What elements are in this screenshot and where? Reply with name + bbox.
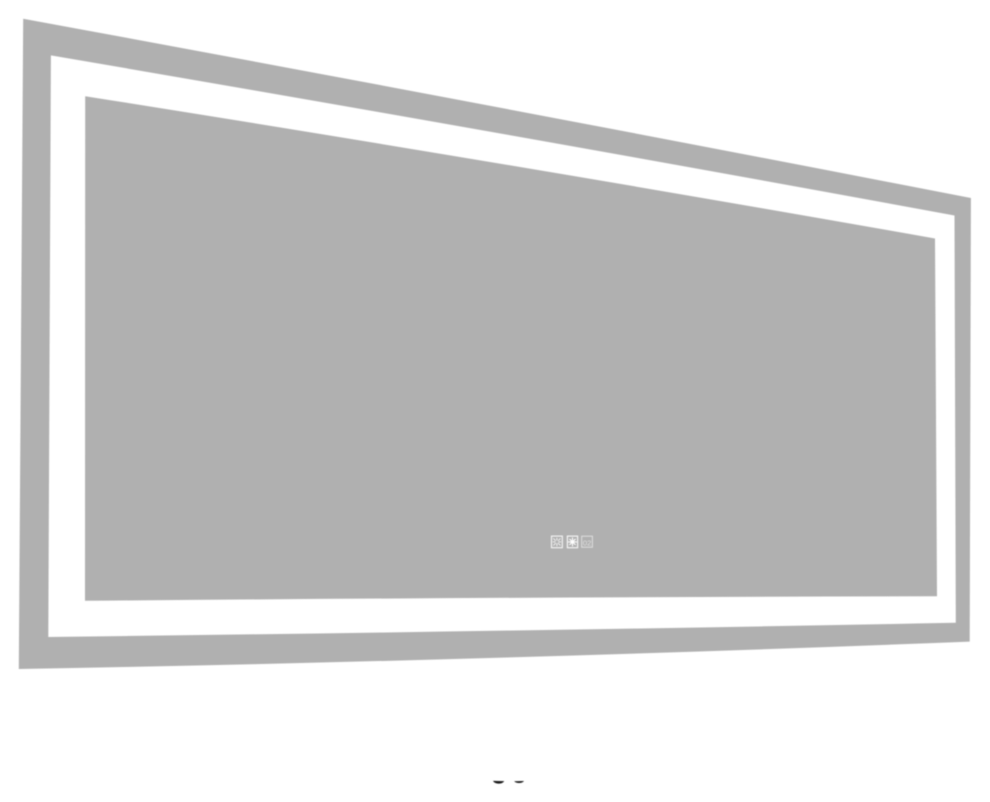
svg-text:02: 02 — [583, 538, 591, 547]
